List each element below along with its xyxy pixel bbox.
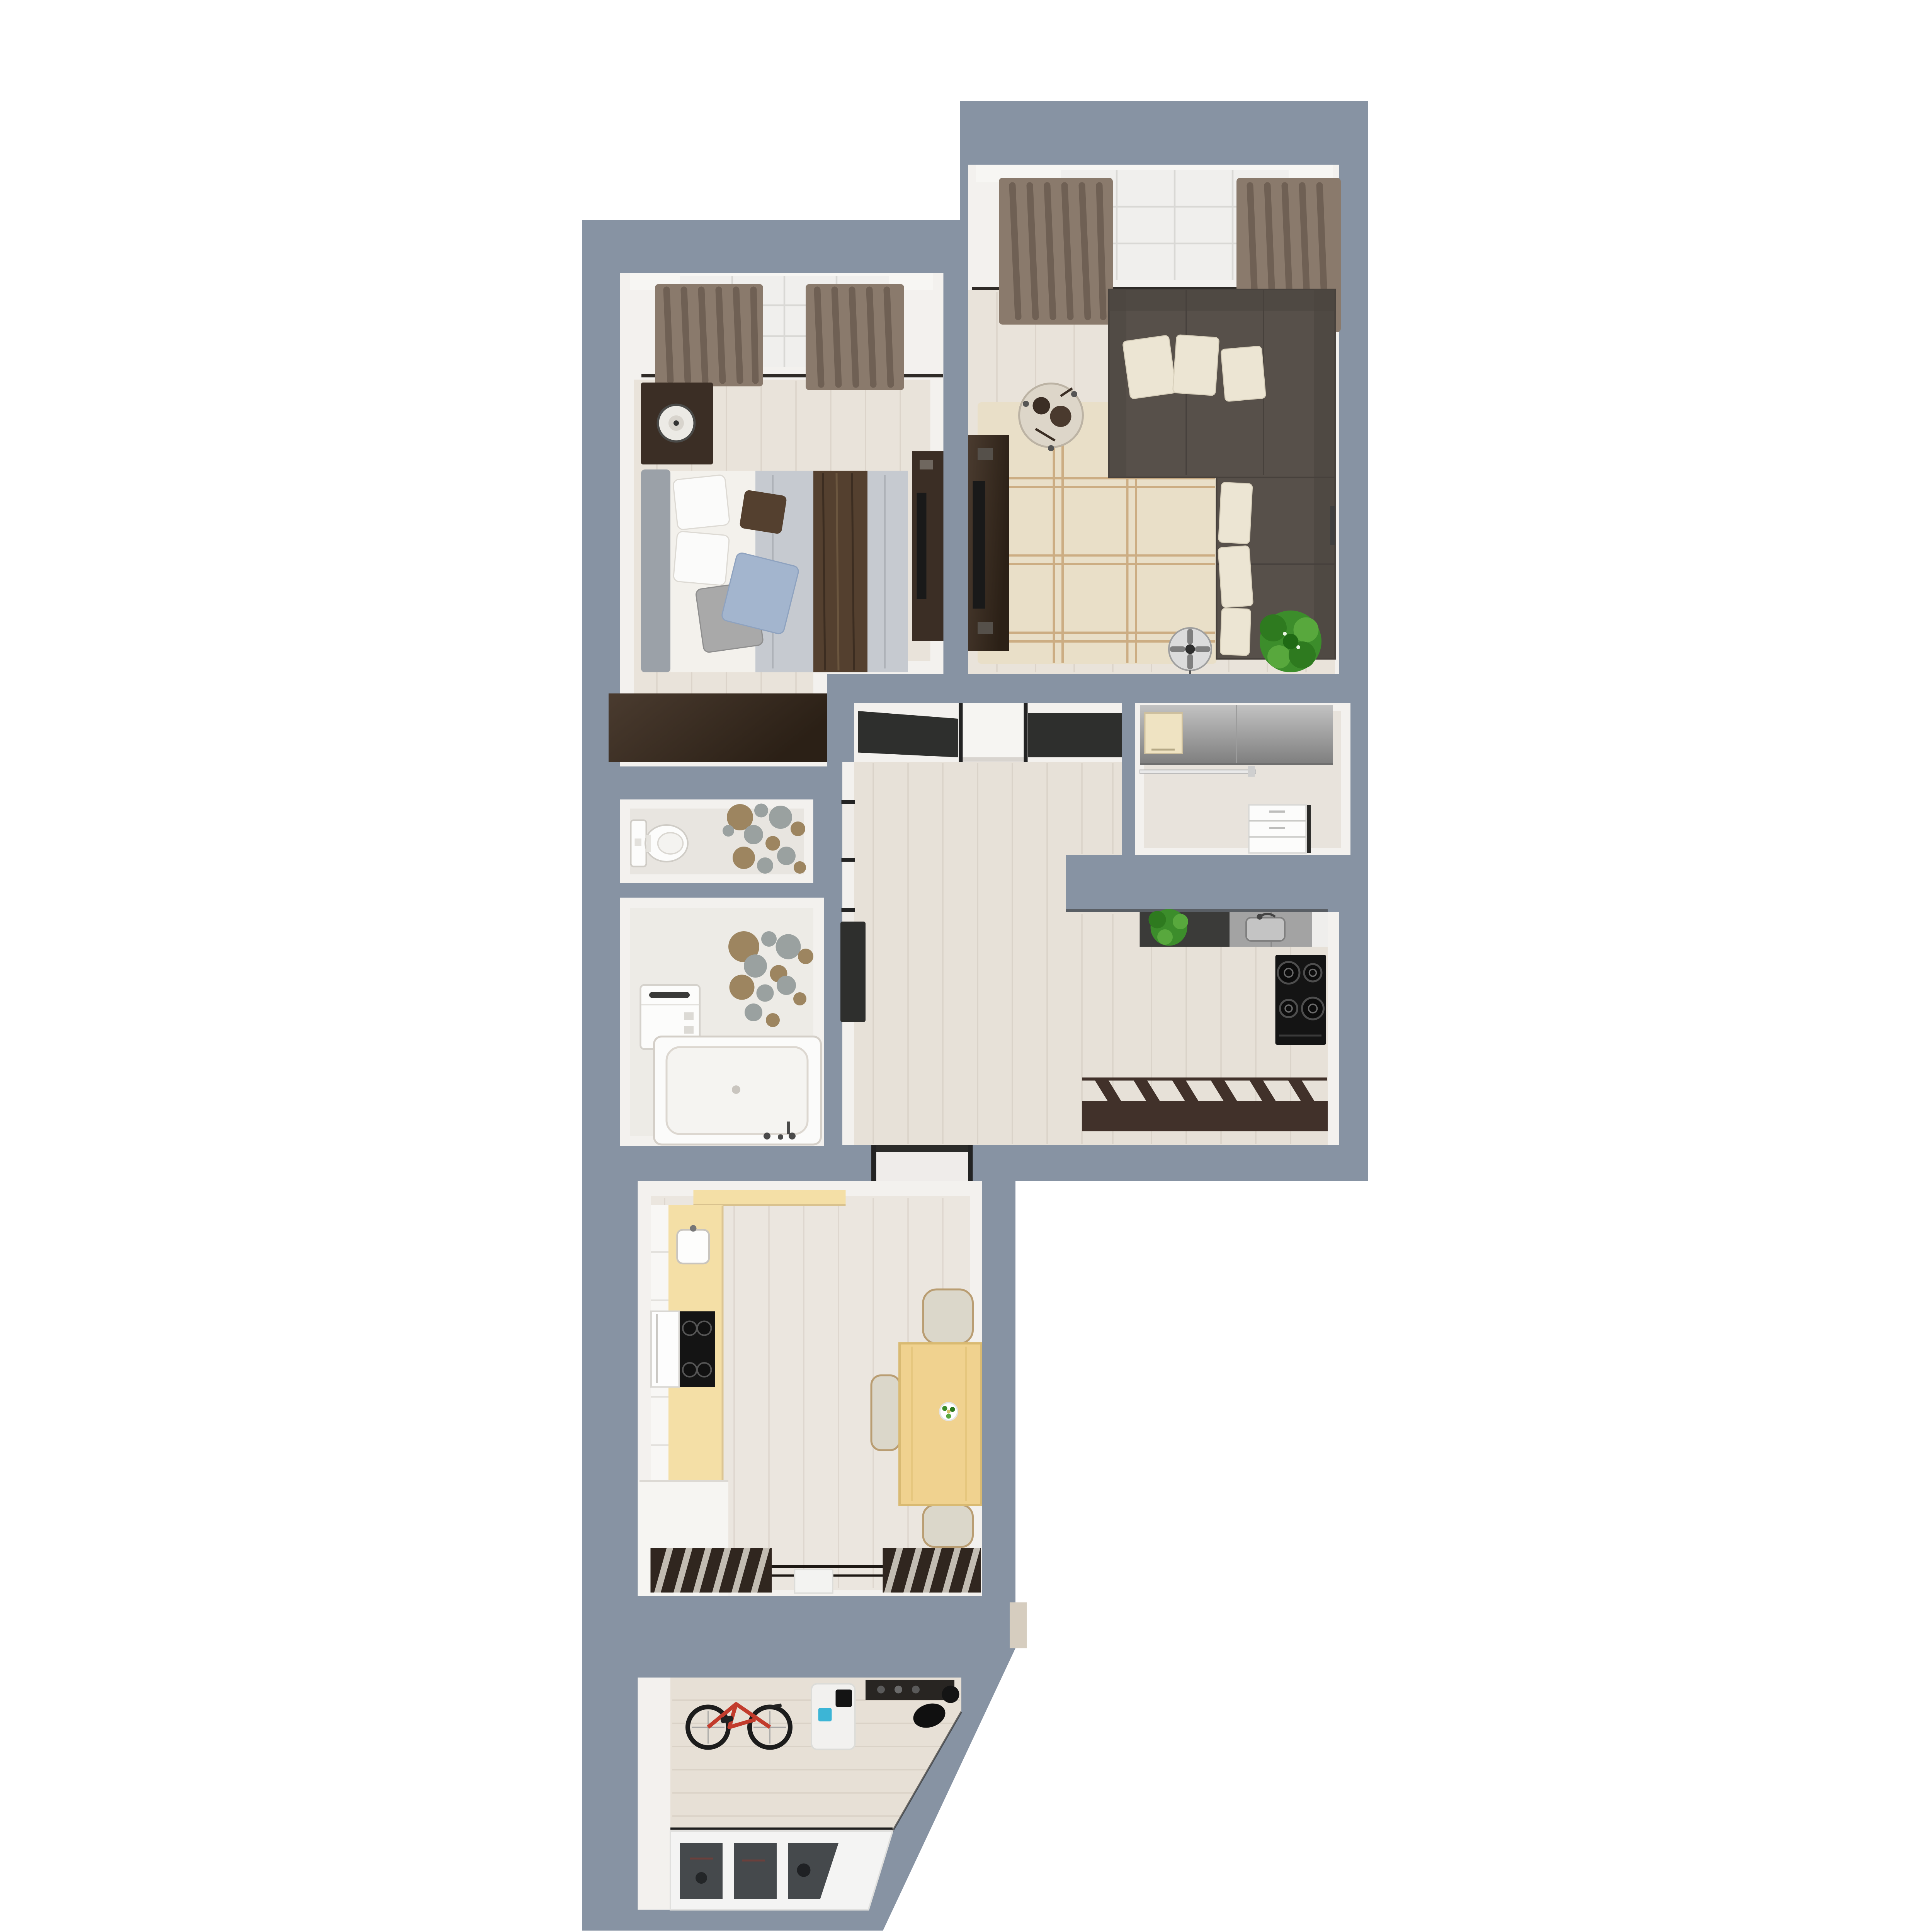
counter-top-strip	[694, 1190, 846, 1205]
wall-switch	[1330, 506, 1335, 545]
nightstand	[641, 383, 713, 464]
glass-pane-2	[734, 1843, 777, 1899]
room-bathroom	[620, 898, 824, 1146]
bedroom-curtain-right	[806, 284, 904, 390]
dining-sink	[677, 1230, 709, 1264]
sink-counter	[1230, 912, 1328, 947]
room-dining	[638, 1181, 982, 1596]
white-stand	[811, 1684, 855, 1750]
tv-cabinet	[968, 435, 1009, 651]
pillow-brown	[739, 490, 787, 534]
flower-vase	[940, 1403, 957, 1420]
pillow-white-2	[673, 531, 730, 585]
chair-top	[923, 1289, 973, 1344]
floor-plan-canvas	[0, 0, 1932, 1932]
room-pantry	[1135, 703, 1350, 855]
kitchen-stub-shadow	[1066, 909, 1328, 912]
room-wc	[620, 799, 813, 883]
pillow-white-1	[673, 474, 730, 530]
black-gadget	[836, 1690, 852, 1707]
balcony-shelf	[866, 1680, 954, 1701]
living-curtain-left	[999, 178, 1113, 325]
wardrobe-dresser	[609, 694, 827, 762]
blue-accent-item	[818, 1708, 832, 1721]
chair-bottom	[923, 1505, 973, 1547]
kitchen-dark-counter	[1140, 909, 1230, 947]
floor-mat	[795, 1570, 833, 1593]
bed-runner	[813, 471, 867, 673]
bathtub	[654, 1037, 821, 1145]
floor-plan	[0, 0, 1932, 1932]
exterior-beige-notch	[1010, 1602, 1027, 1648]
wc-doorway	[842, 804, 854, 858]
double-bed	[641, 469, 908, 672]
kitchen-right-wall-face	[1328, 912, 1339, 1145]
rack-left	[651, 1548, 772, 1593]
stored-item-black-2	[942, 1686, 959, 1703]
cooktop	[679, 1311, 715, 1387]
glass-pane-1	[680, 1843, 723, 1899]
rack-right	[883, 1548, 981, 1593]
balcony-glazing	[670, 1831, 893, 1910]
open-door-bathroom	[840, 922, 866, 1022]
white-drawers	[1249, 805, 1311, 853]
living-plant	[1260, 611, 1321, 672]
room-living	[968, 165, 1341, 675]
doorway-living	[963, 703, 1024, 762]
headboard	[641, 469, 670, 672]
oven	[651, 1311, 679, 1387]
microwave	[1145, 713, 1183, 753]
tv-screen	[973, 481, 986, 609]
open-door-bedroom	[858, 711, 958, 757]
bedroom-tv-dresser	[912, 451, 944, 641]
hall-dark-trim-right	[1028, 713, 1122, 757]
bedroom-curtain-left	[655, 284, 763, 386]
balcony-left-wall-face	[638, 1678, 671, 1910]
kitchen-sink	[1246, 918, 1285, 941]
gas-stove	[1276, 955, 1326, 1045]
chair-left	[871, 1376, 900, 1451]
room-balcony	[638, 1678, 962, 1910]
